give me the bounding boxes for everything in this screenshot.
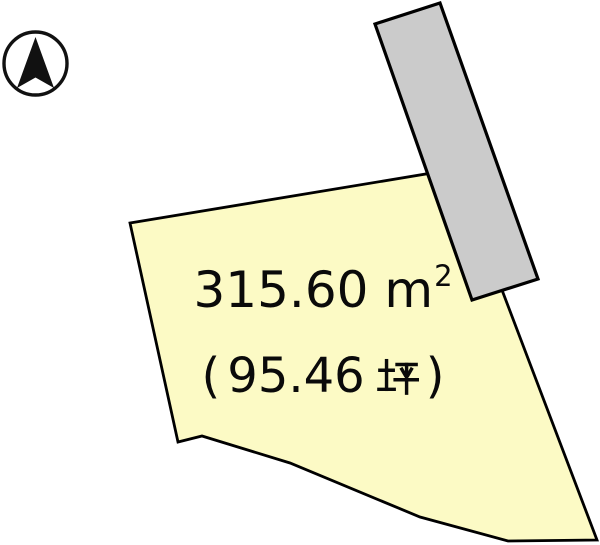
land-parcel-shape [130,169,597,541]
land-plot-diagram: 315.60 m2 (95.46 ) [0,0,600,545]
north-arrow-icon [4,32,67,95]
diagram-canvas [0,0,600,545]
